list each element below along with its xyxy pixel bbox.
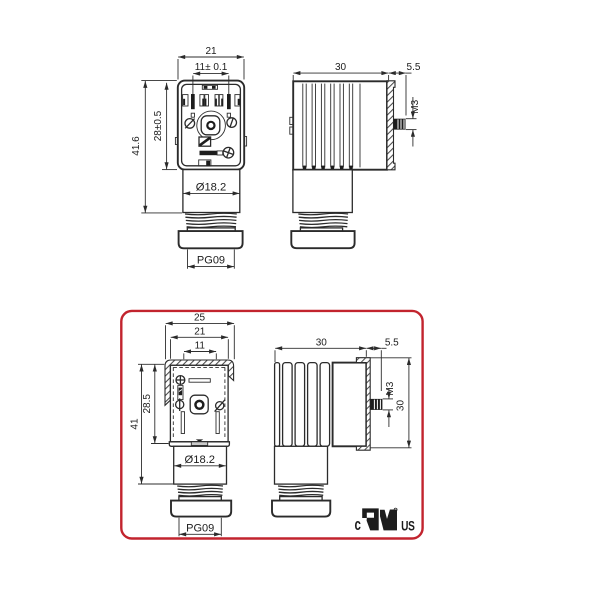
svg-text:Ø18.2: Ø18.2	[196, 182, 226, 194]
svg-text:US: US	[401, 518, 415, 534]
svg-text:30: 30	[335, 62, 347, 73]
svg-text:11: 11	[195, 341, 206, 352]
svg-text:5.5: 5.5	[407, 62, 421, 73]
svg-text:41.6: 41.6	[131, 136, 142, 156]
svg-text:Ø18.2: Ø18.2	[185, 454, 215, 466]
svg-text:21: 21	[194, 326, 206, 337]
svg-text:M3: M3	[385, 381, 396, 395]
svg-text:28±0.5: 28±0.5	[153, 110, 164, 141]
svg-text:c: c	[355, 516, 361, 535]
svg-text:30: 30	[396, 400, 407, 412]
svg-text:28.5: 28.5	[142, 394, 153, 414]
svg-text:30: 30	[316, 337, 328, 348]
svg-text:11± 0.1: 11± 0.1	[195, 62, 228, 73]
svg-text:21: 21	[205, 46, 217, 57]
svg-text:25: 25	[194, 312, 206, 323]
svg-text:PG09: PG09	[197, 254, 225, 266]
svg-text:41: 41	[129, 418, 140, 430]
svg-text:5.5: 5.5	[385, 337, 399, 348]
svg-text:PG09: PG09	[186, 522, 214, 534]
svg-text:M3: M3	[410, 99, 421, 113]
